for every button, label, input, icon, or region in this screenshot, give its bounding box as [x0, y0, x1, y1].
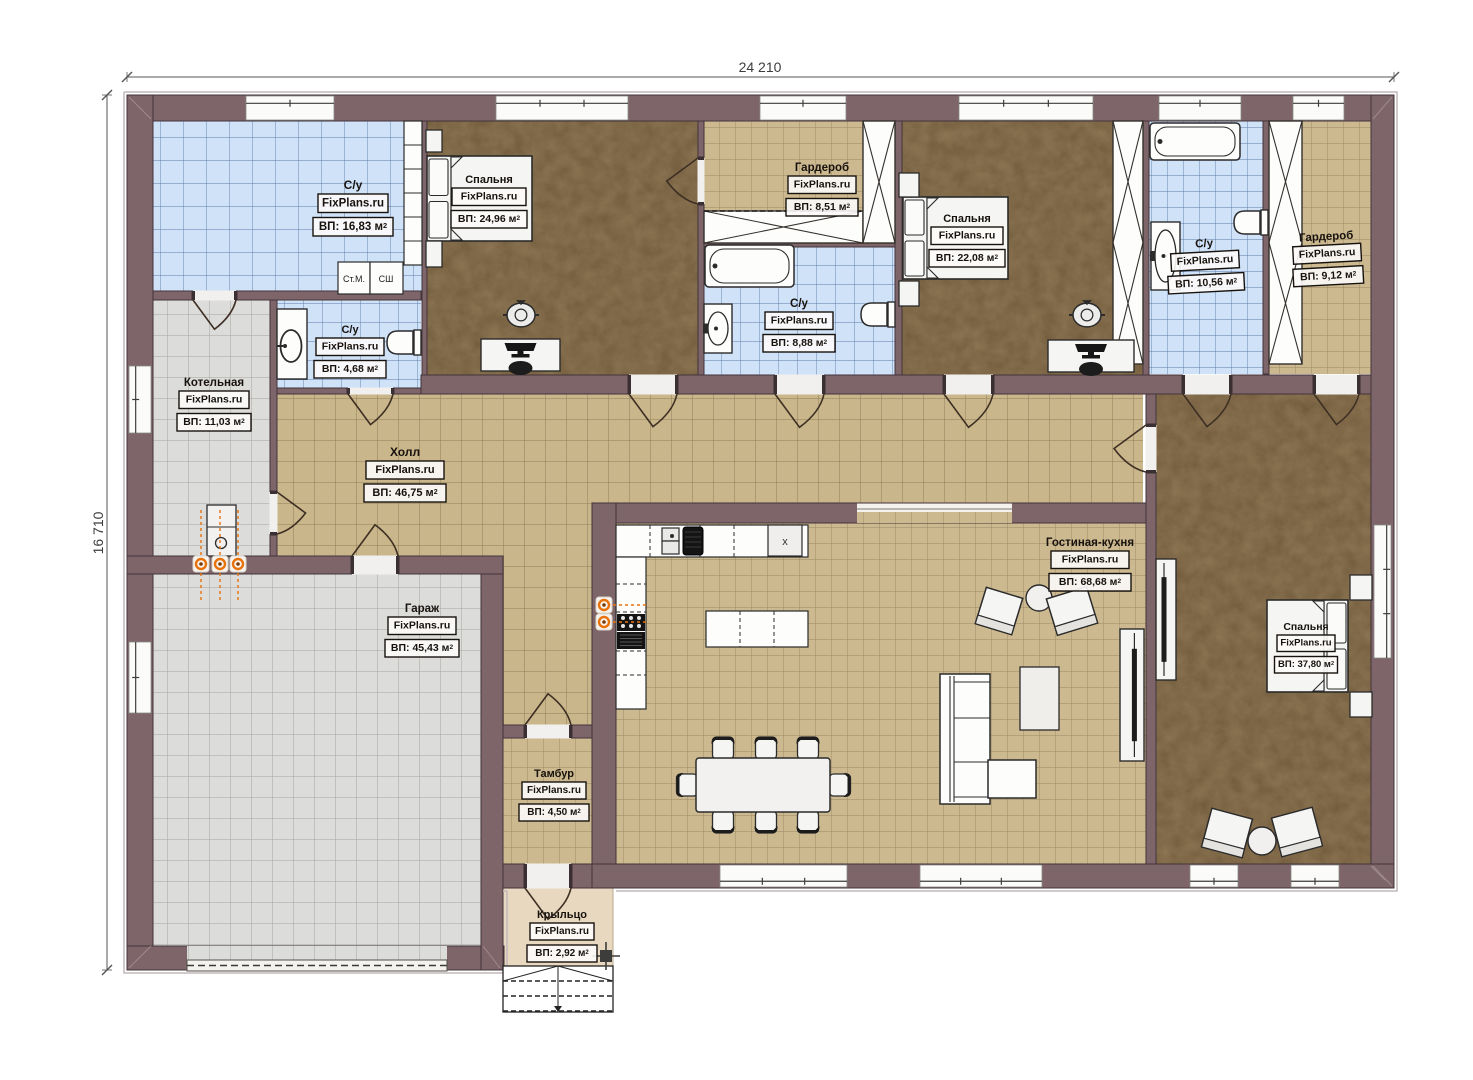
svg-text:Гардероб: Гардероб	[795, 162, 849, 174]
svg-text:Спальня: Спальня	[1283, 621, 1328, 633]
svg-text:ВП: 4,68 м2: ВП: 4,68 м2	[322, 363, 379, 375]
svg-text:С/у: С/у	[344, 178, 363, 192]
svg-text:ВП: 4,50 м2: ВП: 4,50 м2	[527, 807, 581, 818]
svg-text:ВП: 11,03 м2: ВП: 11,03 м2	[183, 416, 245, 428]
svg-text:Спальня: Спальня	[465, 174, 513, 186]
svg-text:С/у: С/у	[1195, 238, 1214, 251]
svg-text:ВП: 24,96 м2: ВП: 24,96 м2	[458, 213, 521, 225]
svg-text:Гостиная-кухня: Гостиная-кухня	[1046, 537, 1134, 549]
svg-text:FixPlans.ru: FixPlans.ru	[1062, 554, 1119, 566]
svg-text:FixPlans.ru: FixPlans.ru	[794, 179, 851, 191]
svg-text:FixPlans.ru: FixPlans.ru	[535, 926, 589, 937]
svg-text:С/у: С/у	[341, 324, 359, 336]
svg-text:С/у: С/у	[790, 298, 809, 310]
svg-text:СШ: СШ	[379, 274, 394, 284]
svg-text:ВП: 8,88 м2: ВП: 8,88 м2	[771, 337, 828, 349]
svg-text:24 210: 24 210	[739, 59, 782, 75]
svg-text:ВП: 16,83 м2: ВП: 16,83 м2	[319, 221, 387, 233]
svg-text:Холл: Холл	[390, 445, 420, 459]
svg-text:ВП: 8,51 м2: ВП: 8,51 м2	[794, 201, 851, 213]
svg-text:x: x	[782, 536, 788, 548]
svg-text:ВП: 22,08 м2: ВП: 22,08 м2	[936, 252, 999, 264]
svg-text:ВП: 45,43 м2: ВП: 45,43 м2	[391, 642, 454, 654]
svg-text:FixPlans.ru: FixPlans.ru	[1280, 638, 1331, 649]
svg-text:FixPlans.ru: FixPlans.ru	[186, 394, 243, 406]
svg-text:FixPlans.ru: FixPlans.ru	[771, 315, 828, 327]
svg-text:FixPlans.ru: FixPlans.ru	[939, 230, 996, 242]
svg-text:FixPlans.ru: FixPlans.ru	[461, 191, 518, 203]
svg-text:ВП: 68,68 м2: ВП: 68,68 м2	[1059, 576, 1122, 588]
svg-text:ВП: 37,80 м2: ВП: 37,80 м2	[1278, 659, 1334, 670]
svg-text:FixPlans.ru: FixPlans.ru	[394, 620, 451, 632]
svg-text:Котельная: Котельная	[184, 377, 244, 389]
svg-text:Тамбур: Тамбур	[534, 768, 574, 780]
svg-text:Ст.М.: Ст.М.	[343, 274, 365, 284]
svg-text:FixPlans.ru: FixPlans.ru	[375, 464, 434, 476]
svg-text:FixPlans.ru: FixPlans.ru	[322, 198, 384, 210]
svg-text:FixPlans.ru: FixPlans.ru	[322, 341, 379, 353]
svg-text:16 710: 16 710	[90, 511, 106, 554]
svg-text:FixPlans.ru: FixPlans.ru	[527, 785, 581, 796]
svg-text:Крыльцо: Крыльцо	[537, 909, 587, 921]
svg-text:Спальня: Спальня	[943, 213, 991, 225]
svg-text:Гараж: Гараж	[405, 603, 440, 615]
svg-text:ВП: 46,75 м2: ВП: 46,75 м2	[372, 487, 437, 499]
svg-text:ВП: 2,92 м2: ВП: 2,92 м2	[535, 948, 589, 959]
